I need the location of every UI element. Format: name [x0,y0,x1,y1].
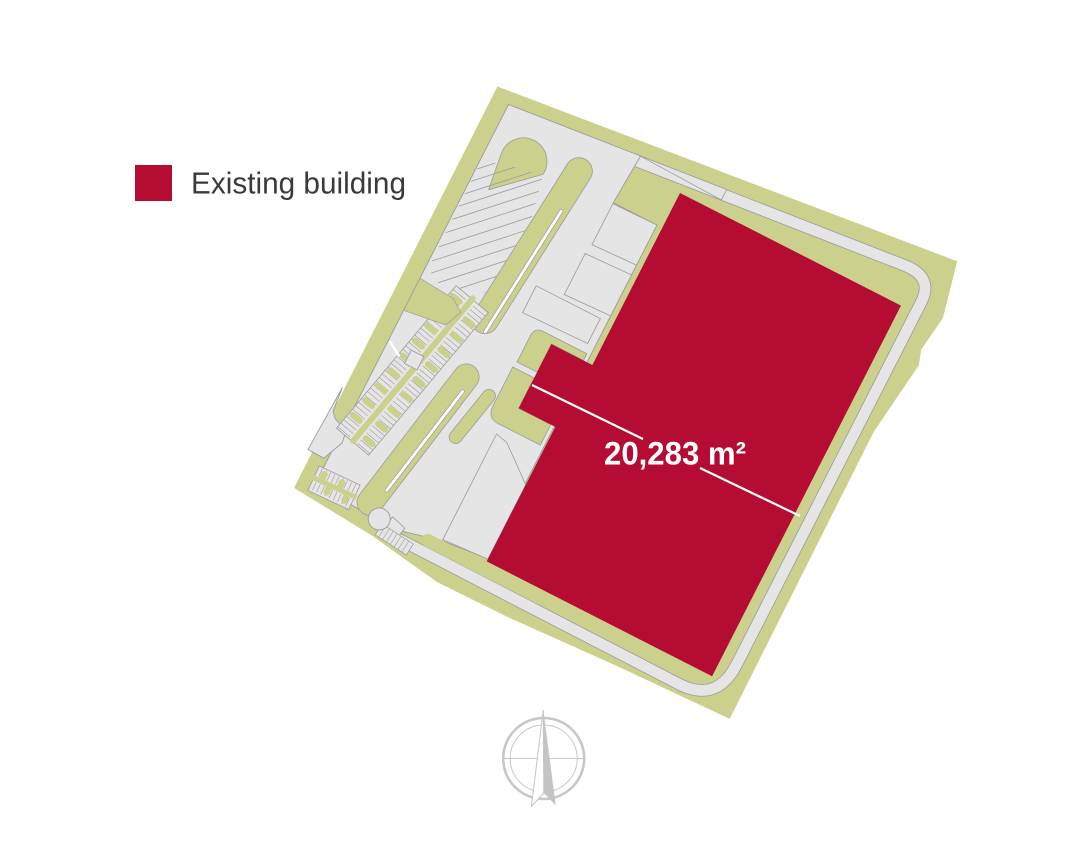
svg-text:20,283 m²: 20,283 m² [604,436,746,472]
svg-text:Existing building: Existing building [191,166,406,201]
